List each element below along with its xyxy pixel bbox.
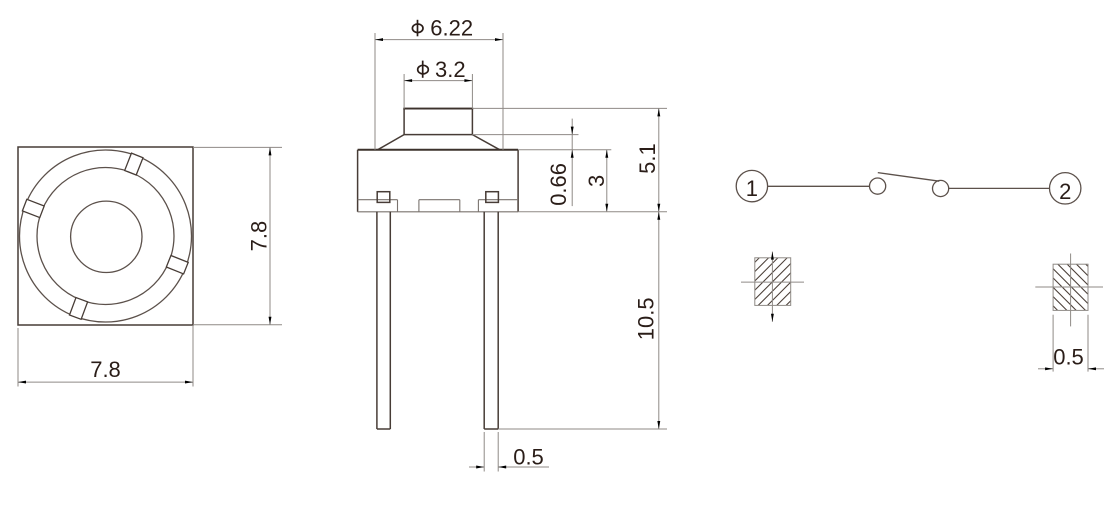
svg-text:0.5: 0.5 (1053, 344, 1084, 369)
svg-text:0.66: 0.66 (546, 163, 571, 206)
svg-text:10.5: 10.5 (634, 297, 659, 340)
svg-text:5.1: 5.1 (635, 143, 660, 174)
svg-text:2: 2 (1059, 179, 1071, 204)
svg-text:6.22: 6.22 (430, 16, 473, 41)
svg-text:0.5: 0.5 (513, 445, 544, 470)
svg-text:7.8: 7.8 (247, 221, 272, 252)
svg-text:7.8: 7.8 (90, 357, 121, 382)
svg-text:3: 3 (584, 175, 609, 187)
svg-text:1: 1 (746, 176, 758, 201)
svg-text:3.2: 3.2 (435, 57, 466, 82)
